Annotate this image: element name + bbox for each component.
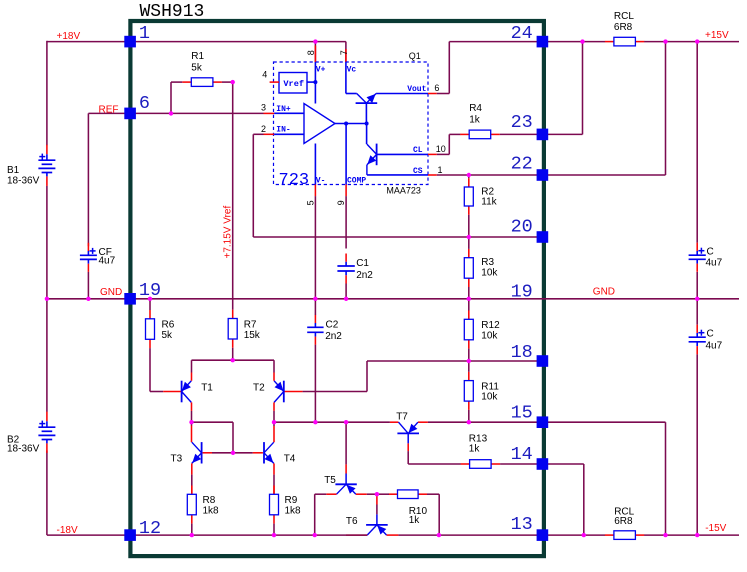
svg-text:T6: T6 xyxy=(346,516,358,527)
svg-text:+7.15V Vref: +7.15V Vref xyxy=(223,206,234,259)
svg-text:1k8: 1k8 xyxy=(285,505,302,516)
svg-text:18-36V: 18-36V xyxy=(7,444,40,455)
svg-text:1k: 1k xyxy=(409,515,421,526)
svg-text:T4: T4 xyxy=(284,453,296,464)
svg-text:C: C xyxy=(707,329,714,340)
svg-text:Q1: Q1 xyxy=(409,51,421,61)
svg-text:1: 1 xyxy=(438,165,443,175)
svg-text:2: 2 xyxy=(261,124,266,134)
svg-text:24: 24 xyxy=(511,23,533,44)
svg-text:CL: CL xyxy=(413,146,423,155)
svg-text:IN+: IN+ xyxy=(276,105,291,114)
svg-text:Vc: Vc xyxy=(347,66,357,75)
svg-text:C1: C1 xyxy=(356,258,369,269)
svg-text:13: 13 xyxy=(511,514,533,535)
svg-text:723: 723 xyxy=(279,171,310,190)
svg-text:6: 6 xyxy=(139,93,150,114)
svg-text:T5: T5 xyxy=(324,475,336,486)
svg-text:8: 8 xyxy=(306,50,316,55)
svg-text:-15V: -15V xyxy=(705,523,726,534)
svg-text:6R8: 6R8 xyxy=(614,516,633,527)
svg-text:15k: 15k xyxy=(244,330,261,341)
svg-text:Vout: Vout xyxy=(407,85,426,94)
svg-text:4u7: 4u7 xyxy=(706,258,723,269)
svg-text:9: 9 xyxy=(336,200,346,205)
svg-text:R4: R4 xyxy=(469,103,482,114)
svg-text:2n2: 2n2 xyxy=(356,270,373,281)
svg-text:REF: REF xyxy=(99,104,119,115)
svg-text:T7: T7 xyxy=(396,412,408,423)
svg-text:MAA723: MAA723 xyxy=(386,186,421,196)
svg-text:15: 15 xyxy=(511,402,533,423)
svg-text:19: 19 xyxy=(511,282,533,303)
svg-text:R1: R1 xyxy=(191,51,204,62)
svg-text:T2: T2 xyxy=(253,382,265,393)
svg-text:Vref: Vref xyxy=(283,79,304,89)
svg-text:2n2: 2n2 xyxy=(325,331,342,342)
svg-text:V+: V+ xyxy=(316,66,326,75)
svg-text:14: 14 xyxy=(511,444,533,465)
svg-text:6: 6 xyxy=(434,83,439,93)
svg-text:12: 12 xyxy=(139,518,161,539)
svg-text:10k: 10k xyxy=(481,330,498,341)
svg-text:1k: 1k xyxy=(469,114,481,125)
svg-text:CS: CS xyxy=(413,167,423,176)
svg-text:18-36V: 18-36V xyxy=(7,175,40,186)
svg-text:1k: 1k xyxy=(469,443,481,454)
svg-text:10k: 10k xyxy=(481,267,498,278)
svg-text:COMP: COMP xyxy=(347,177,366,186)
svg-text:22: 22 xyxy=(511,154,533,175)
svg-text:1: 1 xyxy=(139,23,150,44)
svg-text:RCL: RCL xyxy=(614,11,634,22)
svg-text:20: 20 xyxy=(511,217,533,238)
svg-text:10k: 10k xyxy=(481,392,498,403)
svg-text:T1: T1 xyxy=(201,382,213,393)
svg-text:19: 19 xyxy=(139,280,161,301)
svg-text:WSH913: WSH913 xyxy=(140,2,205,22)
svg-text:4u7: 4u7 xyxy=(99,256,116,267)
svg-text:1k8: 1k8 xyxy=(203,505,220,516)
svg-text:5k: 5k xyxy=(162,330,174,341)
svg-text:7: 7 xyxy=(339,50,349,55)
svg-text:6R8: 6R8 xyxy=(614,22,633,33)
svg-text:18: 18 xyxy=(511,342,533,363)
svg-text:10: 10 xyxy=(436,144,446,154)
svg-text:GND: GND xyxy=(100,287,122,298)
svg-text:3: 3 xyxy=(261,103,266,113)
svg-text:5: 5 xyxy=(305,200,315,205)
svg-text:4: 4 xyxy=(262,69,267,79)
svg-text:IN-: IN- xyxy=(276,126,290,135)
svg-text:23: 23 xyxy=(511,112,533,133)
svg-text:V-: V- xyxy=(316,177,326,186)
svg-text:C: C xyxy=(707,247,714,258)
svg-text:+18V: +18V xyxy=(57,31,81,42)
svg-text:B1: B1 xyxy=(7,165,20,176)
svg-text:5k: 5k xyxy=(191,62,203,73)
svg-text:4u7: 4u7 xyxy=(706,340,723,351)
svg-text:C2: C2 xyxy=(326,319,339,330)
svg-text:T3: T3 xyxy=(171,453,183,464)
svg-text:11k: 11k xyxy=(481,197,497,208)
svg-text:+15V: +15V xyxy=(705,30,729,41)
svg-text:GND: GND xyxy=(593,287,615,298)
